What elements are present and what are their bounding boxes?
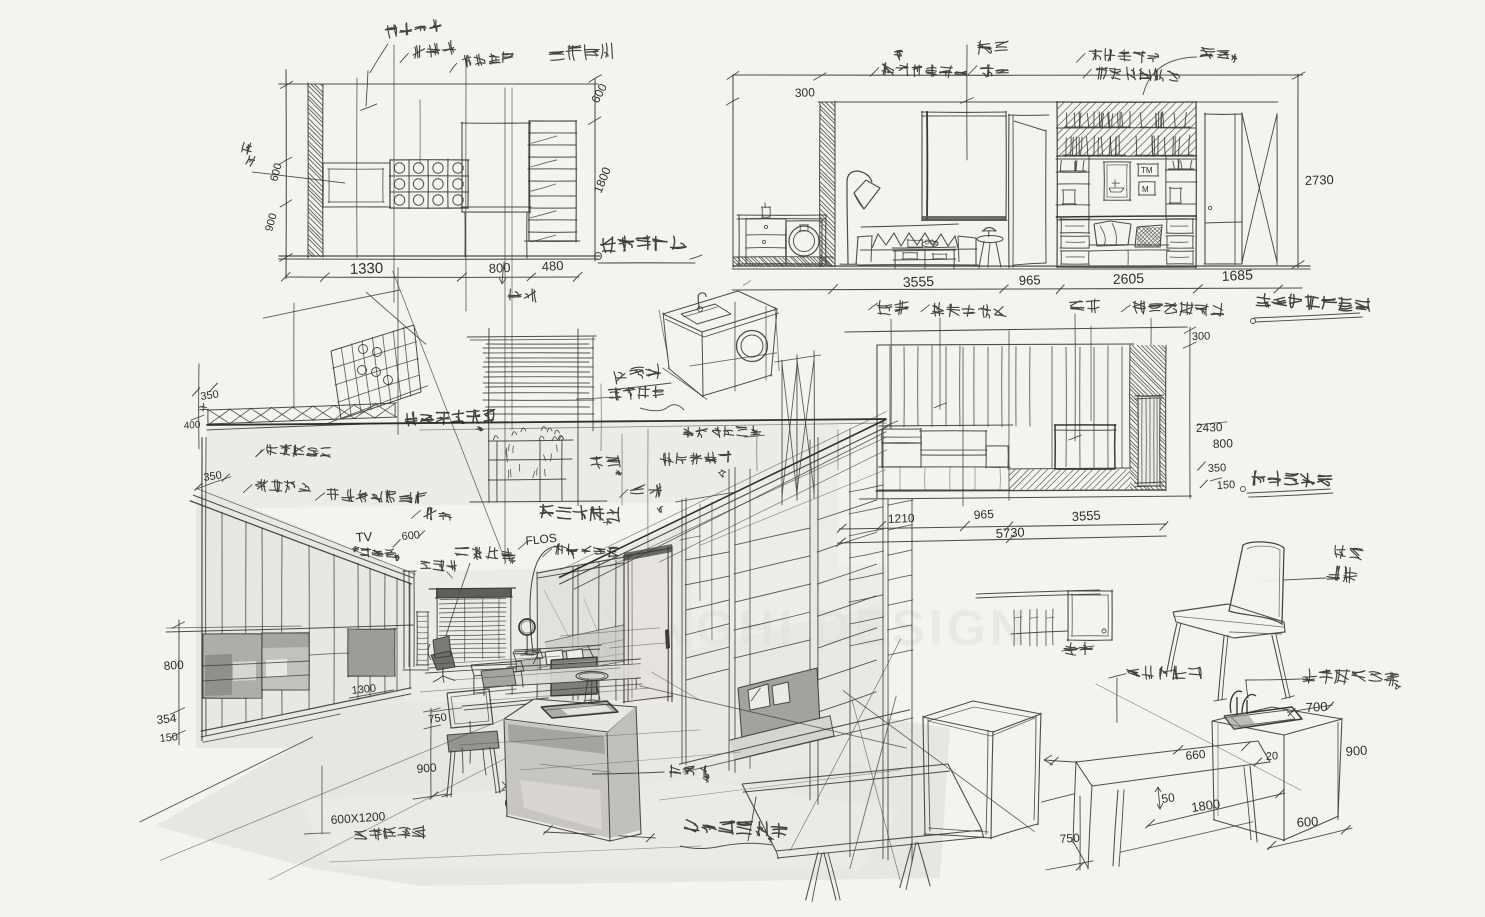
svg-text:TM: TM [1141,166,1153,175]
svg-text:660: 660 [1185,747,1207,763]
svg-text:965: 965 [1019,272,1041,288]
svg-text:300: 300 [1192,330,1211,343]
svg-text:800: 800 [488,260,510,276]
svg-text:354: 354 [156,711,178,727]
svg-text:3555: 3555 [903,273,935,290]
svg-text:600: 600 [401,529,421,543]
svg-text:750: 750 [428,712,448,726]
svg-text:700: 700 [1305,699,1327,715]
svg-text:400: 400 [183,420,201,432]
svg-text:20: 20 [1266,750,1279,763]
svg-text:900: 900 [1345,743,1368,759]
svg-text:M: M [1142,185,1149,194]
svg-text:1685: 1685 [1221,266,1253,284]
svg-text:2730: 2730 [1305,172,1334,188]
svg-text:3555: 3555 [1071,508,1101,524]
svg-text:965: 965 [973,507,994,522]
svg-text:1330: 1330 [350,260,384,278]
svg-text:1300: 1300 [351,682,377,696]
svg-text:1210: 1210 [888,511,915,526]
svg-text:2605: 2605 [1113,270,1145,287]
svg-text:600: 600 [1296,814,1319,830]
svg-text:800: 800 [163,658,184,673]
svg-text:350: 350 [1208,462,1227,475]
svg-text:750: 750 [1059,831,1080,846]
svg-text:150: 150 [1217,479,1236,492]
svg-text:300: 300 [795,85,816,100]
svg-text:150: 150 [159,731,179,745]
svg-text:350: 350 [203,470,223,484]
svg-text:900: 900 [416,760,437,776]
svg-text:800: 800 [1213,436,1234,451]
svg-text:TV: TV [355,529,373,545]
svg-text:480: 480 [541,258,563,274]
